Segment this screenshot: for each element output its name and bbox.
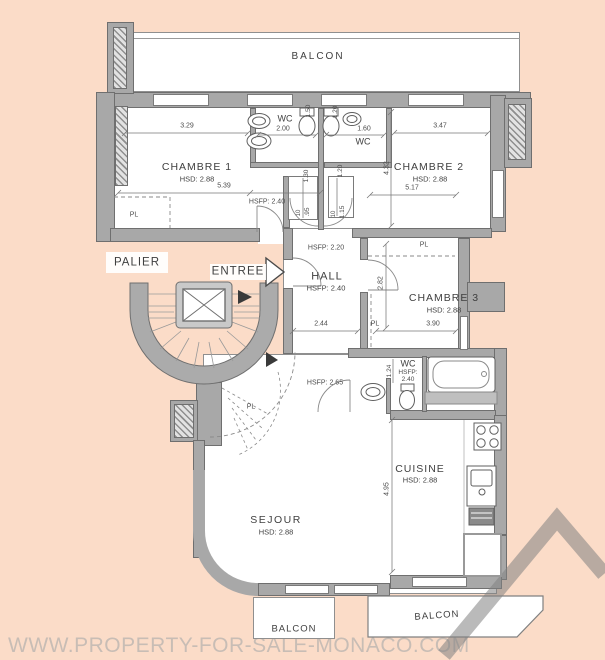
balcony-railing: [128, 38, 520, 39]
dim-hall-width: 2.44: [314, 321, 328, 328]
dim-shaft: 1.50: [306, 105, 313, 118]
closet-label: PL: [371, 321, 380, 328]
balcony-top-label: BALCON: [291, 52, 344, 62]
watermark-text: WWW.PROPERTY-FOR-SALE-MONACO.COM: [8, 634, 470, 658]
hall-hsfp-entry: HSFP: 2.20: [308, 245, 344, 252]
wall-hall-left-lower: [283, 288, 293, 354]
dim-closet-left: 1.30: [304, 170, 311, 183]
bathroom-wc-label: WC: [401, 360, 416, 369]
sejour-hsd: HSD: 2.88: [259, 528, 294, 536]
bathroom-hsfp-value: 2.40: [402, 377, 415, 384]
chambre1-label: CHAMBRE 1: [162, 162, 232, 173]
hall-hsfp-under-stair: HSFP: 2.65: [307, 380, 343, 387]
dim-door-offset: 10: [331, 211, 337, 218]
wall-cuisine-right-low: [480, 535, 507, 580]
chambre3-label: CHAMBRE 3: [409, 293, 479, 304]
entree-label: ENTREE: [212, 266, 265, 278]
chambre1-hsd: HSD: 2.88: [180, 175, 215, 183]
dim-chambre1-width: 3.29: [180, 123, 194, 130]
floor-plan: WWW.PROPERTY-FOR-SALE-MONACO.COM: [0, 0, 605, 660]
closet-label: PL: [420, 242, 429, 249]
wall-wc1-bottom: [250, 162, 324, 168]
balcony-bottom-center-label: BALCON: [271, 624, 316, 634]
window: [412, 577, 467, 587]
radiator-hatch: [113, 27, 127, 89]
chambre2-label: CHAMBRE 2: [394, 162, 464, 173]
chambre1-hsfp: HSFP: 2.40: [249, 199, 285, 206]
cuisine-label: CUISINE: [395, 464, 445, 475]
window: [153, 94, 209, 106]
cuisine-hsd: HSD: 2.88: [403, 476, 438, 484]
dim-wc2-width: 1.60: [357, 126, 371, 133]
floor-threshold: [258, 228, 285, 244]
entry-arrow-icon: [266, 258, 284, 286]
wall-palier: [110, 228, 260, 242]
dim-wc2-depth: 1.20: [333, 106, 340, 119]
dim-closet-right: 1.20: [338, 165, 345, 178]
radiator-hatch: [174, 404, 194, 438]
window: [334, 585, 378, 594]
wall-chambre2-bottom: [352, 228, 492, 238]
dim-chambre2-width: 3.47: [433, 123, 447, 130]
dim-cuisine-length: 4.95: [384, 482, 391, 496]
dim-chambre3-width: 3.90: [426, 321, 440, 328]
wall-bath-divider: [422, 356, 427, 412]
dim-chambre3-depth: 2.82: [378, 276, 385, 290]
wc1-label: WC: [278, 115, 293, 124]
dim-door-width: .95: [305, 207, 312, 216]
wall-shaft-spine: [318, 108, 324, 230]
wall-chambre3-left-upper: [360, 238, 368, 260]
radiator-hatch: [115, 106, 128, 186]
sejour-label: SEJOUR: [250, 515, 302, 526]
dim-chambre2-depth: 4.32: [384, 161, 391, 175]
chambre2-hsd: HSD: 2.88: [413, 175, 448, 183]
wall-stair-stub: [196, 382, 222, 446]
wc2-label: WC: [356, 138, 371, 147]
balcony-bottom-right-label: BALCON: [414, 610, 460, 623]
window: [460, 316, 468, 350]
wall-left: [96, 92, 115, 242]
balcony-top: [128, 32, 520, 92]
window: [247, 94, 293, 106]
radiator-hatch: [508, 104, 526, 160]
wall-wc1-left: [250, 108, 256, 168]
dim-chambre2-length: 5.17: [405, 185, 419, 192]
chambre3-hsd: HSD: 2.88: [427, 306, 462, 314]
window: [492, 170, 504, 218]
window: [321, 94, 367, 106]
wall-hall-left-upper: [283, 228, 293, 260]
dim-door-offset: 10: [296, 210, 302, 217]
dim-bathroom-width: 1.24: [387, 365, 394, 378]
window: [408, 94, 464, 106]
window: [285, 585, 329, 594]
wall-bath-bottom: [390, 410, 496, 420]
wall-cuisine-right: [494, 415, 507, 535]
wall-wc2-right: [386, 108, 392, 168]
elevator-icon: [176, 282, 232, 328]
dim-chambre1-length: 5.39: [217, 183, 231, 190]
hall-label: HALL: [311, 272, 343, 283]
wall-wc2-bottom: [324, 162, 392, 168]
wall-bath-divider: [386, 378, 391, 414]
palier-label: PALIER: [114, 257, 160, 269]
hall-hsfp: HSFP: 2.40: [307, 284, 346, 292]
dim-wc1-width: 2.00: [276, 126, 290, 133]
closet-label: PL: [130, 212, 139, 219]
dim-door-width: 1.15: [340, 206, 347, 219]
wall-chambre3-left-lower: [360, 292, 368, 354]
closet-label: PL: [247, 404, 256, 411]
